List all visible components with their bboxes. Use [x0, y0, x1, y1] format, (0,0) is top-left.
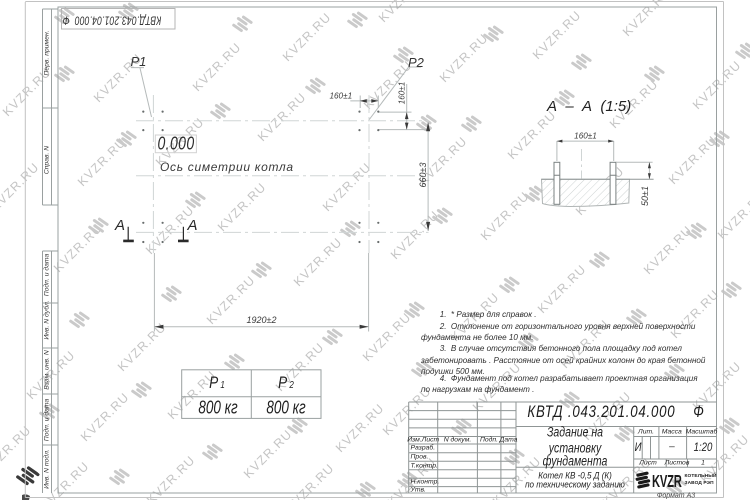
- svg-text:KVZR: KVZR: [652, 473, 682, 491]
